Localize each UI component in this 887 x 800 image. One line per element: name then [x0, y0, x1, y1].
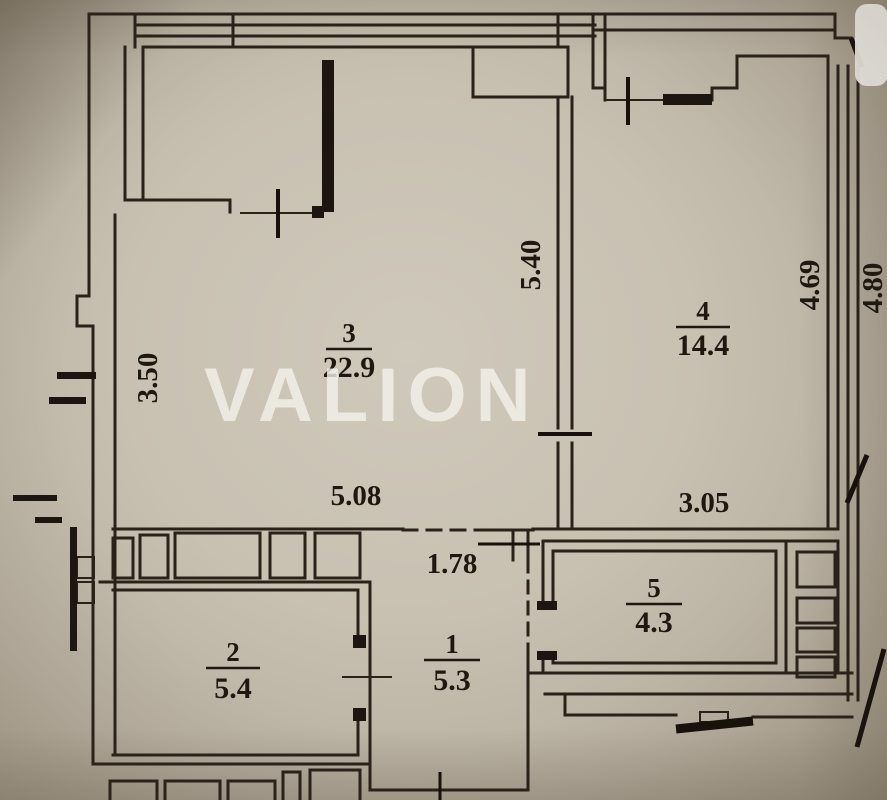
dim-room3-width: 5.08 — [331, 480, 382, 512]
dim-room4-outer-height: 4.80 — [857, 263, 887, 314]
dim-room4-width: 3.05 — [679, 487, 730, 519]
watermark: VALION — [204, 352, 539, 439]
dim-room3-left-height: 3.50 — [132, 353, 164, 404]
room5-number: 5 — [647, 573, 661, 603]
photo-corner-glare — [855, 4, 887, 86]
room2-area: 5.4 — [214, 672, 252, 705]
room2-number: 2 — [226, 637, 240, 667]
room3-number: 3 — [342, 318, 356, 348]
entrance-door-leaf — [676, 721, 753, 729]
room1-area: 5.3 — [433, 664, 471, 697]
entrance-door-swing — [857, 649, 884, 747]
room5-area: 4.3 — [635, 606, 673, 639]
room1-number: 1 — [445, 629, 459, 659]
floorplan-photo: 3 22.9 4 14.4 5 4.3 1 5.3 2 5.4 3.50 5.4… — [0, 0, 887, 800]
room4-area: 14.4 — [677, 329, 730, 362]
dim-room3-inner-height: 5.40 — [515, 240, 547, 291]
dim-hall-opening-width: 1.78 — [427, 548, 478, 580]
dim-room4-inner-height: 4.69 — [794, 260, 826, 311]
room4-number: 4 — [696, 296, 710, 326]
